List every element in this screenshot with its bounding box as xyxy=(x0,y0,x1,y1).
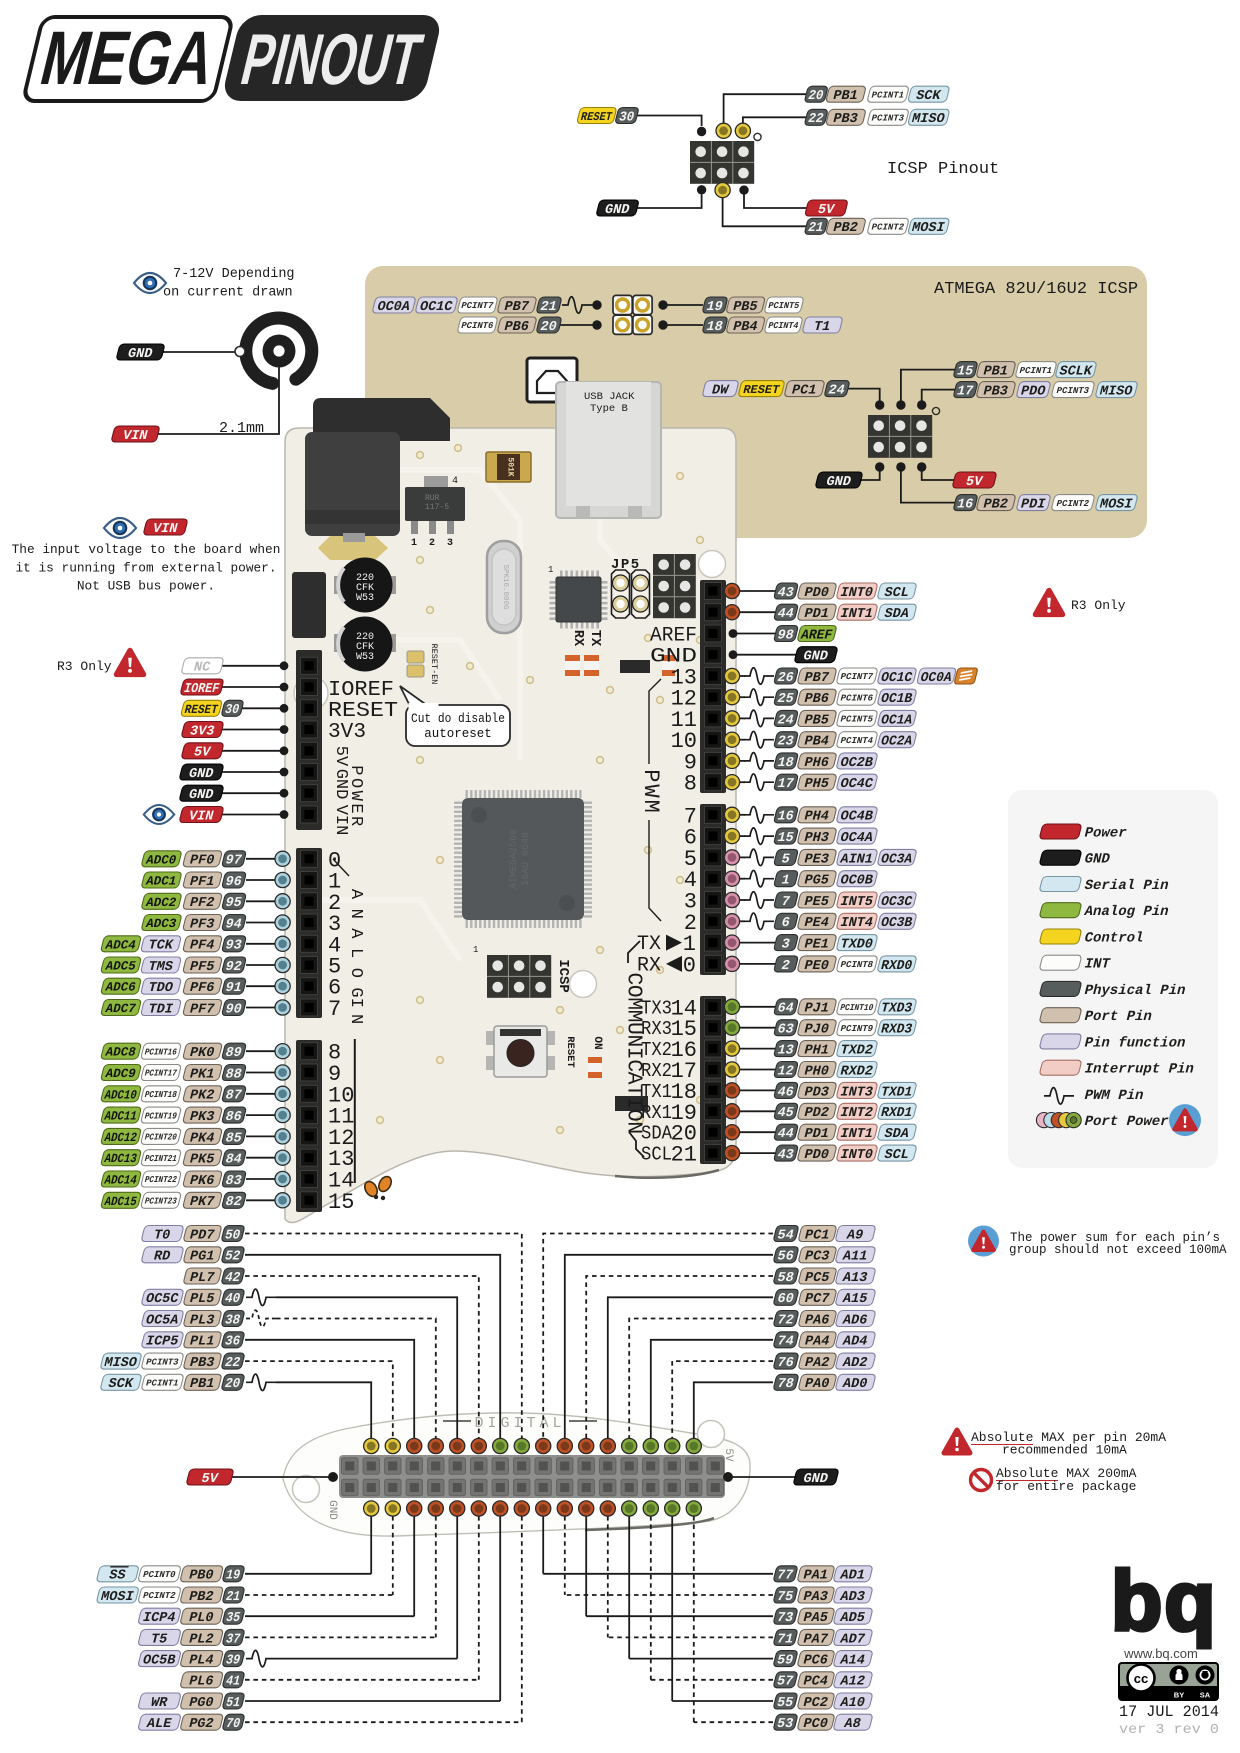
svg-text:PB7: PB7 xyxy=(802,671,830,686)
svg-text:AD3: AD3 xyxy=(838,1590,866,1605)
svg-text:SCLK: SCLK xyxy=(1057,365,1094,380)
svg-text:cc: cc xyxy=(1134,1671,1148,1686)
svg-text:RXD1: RXD1 xyxy=(879,1106,914,1121)
svg-text:ON: ON xyxy=(591,1036,603,1049)
svg-text:IOREF: IOREF xyxy=(328,679,394,702)
svg-text:BY: BY xyxy=(1174,1691,1184,1700)
svg-text:OC0A: OC0A xyxy=(375,300,412,315)
svg-text:ADC9: ADC9 xyxy=(104,1066,138,1081)
svg-text:MEGA: MEGA xyxy=(33,16,223,101)
svg-text:17 JUL 2014: 17 JUL 2014 xyxy=(1119,1703,1219,1721)
svg-text:SPK16.000G: SPK16.000G xyxy=(501,564,509,610)
svg-text:PCINT20: PCINT20 xyxy=(143,1132,178,1143)
svg-text:MOSI: MOSI xyxy=(1098,498,1134,513)
svg-text:PD0: PD0 xyxy=(802,586,830,601)
svg-text:GND: GND xyxy=(603,203,631,218)
svg-text:PH0: PH0 xyxy=(802,1065,830,1080)
svg-text:PL2: PL2 xyxy=(187,1632,215,1647)
svg-text:TDO: TDO xyxy=(146,981,174,996)
svg-text:PCINT2: PCINT2 xyxy=(870,222,905,233)
svg-text:2: 2 xyxy=(429,538,435,549)
svg-text:PL1: PL1 xyxy=(188,1335,216,1350)
svg-text:PB1: PB1 xyxy=(981,365,1009,380)
svg-text:MISO: MISO xyxy=(1098,385,1134,400)
svg-text:MOSI: MOSI xyxy=(910,221,946,236)
svg-text:PCINT9: PCINT9 xyxy=(839,1023,874,1034)
svg-text:PCINT7: PCINT7 xyxy=(839,671,874,682)
svg-text:RX: RX xyxy=(570,630,585,647)
svg-text:AREF: AREF xyxy=(650,625,697,648)
svg-text:PF7: PF7 xyxy=(188,1003,216,1018)
svg-text:RESET: RESET xyxy=(328,700,398,723)
svg-text:ADC14: ADC14 xyxy=(103,1173,139,1188)
svg-text:OC1B: OC1B xyxy=(879,692,914,707)
svg-text:PH1: PH1 xyxy=(802,1044,830,1059)
svg-text:PCINT2: PCINT2 xyxy=(1055,498,1090,509)
svg-text:Control: Control xyxy=(1083,931,1146,947)
svg-text:PJ1: PJ1 xyxy=(802,1002,830,1017)
svg-text:PB6: PB6 xyxy=(802,692,830,707)
svg-text:1: 1 xyxy=(473,945,478,955)
svg-text:ANALOG: ANALOG xyxy=(346,889,365,1007)
svg-text:PA2: PA2 xyxy=(803,1356,831,1371)
svg-text:PCINT3: PCINT3 xyxy=(870,113,906,124)
svg-text:PCINT18: PCINT18 xyxy=(143,1089,178,1100)
svg-text:PC2: PC2 xyxy=(801,1696,829,1711)
svg-text:OC4A: OC4A xyxy=(838,831,875,846)
svg-text:PCINT1: PCINT1 xyxy=(145,1378,181,1389)
svg-text:PK4: PK4 xyxy=(188,1131,216,1146)
svg-text:PCINT5: PCINT5 xyxy=(839,714,874,725)
svg-text:recommended 10mA: recommended 10mA xyxy=(1002,1443,1127,1458)
svg-text:PB3: PB3 xyxy=(831,112,859,127)
svg-text:The input voltage to the board: The input voltage to the board when xyxy=(12,542,281,557)
svg-text:A10: A10 xyxy=(838,1696,866,1711)
svg-text:PB4: PB4 xyxy=(802,735,830,750)
svg-text:PB5: PB5 xyxy=(802,713,830,728)
svg-text:PL3: PL3 xyxy=(188,1314,216,1329)
svg-text:GND: GND xyxy=(187,767,215,782)
svg-text:PCINT1: PCINT1 xyxy=(1018,365,1054,376)
svg-text:3V3: 3V3 xyxy=(188,725,216,740)
svg-text:PC5: PC5 xyxy=(803,1271,831,1286)
svg-text:PA4: PA4 xyxy=(803,1335,831,1350)
svg-text:PINOUT: PINOUT xyxy=(234,20,429,100)
svg-text:A15: A15 xyxy=(841,1292,869,1307)
svg-text:SDA: SDA xyxy=(882,607,911,622)
svg-text:PA1: PA1 xyxy=(801,1569,829,1584)
svg-text:PDO: PDO xyxy=(1019,385,1047,400)
svg-text:ATMEGA2560: ATMEGA2560 xyxy=(509,829,520,889)
svg-text:ADC6: ADC6 xyxy=(104,980,138,995)
svg-text:PK1: PK1 xyxy=(188,1068,216,1083)
svg-text:ADC3: ADC3 xyxy=(144,916,178,931)
svg-text:PCINT4: PCINT4 xyxy=(839,735,875,746)
svg-text:PE4: PE4 xyxy=(802,916,830,931)
svg-text:AREF: AREF xyxy=(799,629,834,644)
svg-text:PD3: PD3 xyxy=(802,1085,830,1100)
svg-text:RESET: RESET xyxy=(741,383,780,397)
svg-text:PCINT3: PCINT3 xyxy=(1055,385,1091,396)
svg-text:SA: SA xyxy=(1200,1691,1211,1700)
svg-text:INT5: INT5 xyxy=(838,895,874,910)
svg-text:GND: GND xyxy=(187,788,215,803)
svg-text:PB5: PB5 xyxy=(731,300,759,315)
svg-text:PCINT21: PCINT21 xyxy=(143,1153,178,1164)
svg-text:GND: GND xyxy=(126,347,154,362)
svg-text:MISO: MISO xyxy=(102,1356,138,1371)
svg-text:PF6: PF6 xyxy=(188,981,216,996)
svg-text:PE0: PE0 xyxy=(802,959,830,974)
svg-text:A11: A11 xyxy=(841,1250,869,1265)
svg-text:PL7: PL7 xyxy=(188,1271,216,1286)
svg-text:R3 Only: R3 Only xyxy=(1071,598,1126,613)
svg-text:PD1: PD1 xyxy=(802,607,830,622)
svg-text:PCINT2: PCINT2 xyxy=(142,1590,177,1601)
svg-text:ADC0: ADC0 xyxy=(144,852,178,867)
svg-text:15: 15 xyxy=(328,1190,354,1215)
svg-text:GND: GND xyxy=(326,1500,338,1520)
svg-text:SCL: SCL xyxy=(882,1148,910,1163)
svg-text:RESET: RESET xyxy=(183,702,220,717)
svg-text:1: 1 xyxy=(548,565,553,575)
svg-text:PC1: PC1 xyxy=(790,384,818,399)
svg-text:ADC5: ADC5 xyxy=(104,959,138,974)
svg-text:PK2: PK2 xyxy=(188,1089,216,1104)
svg-text:8: 8 xyxy=(684,772,697,797)
svg-text:AD2: AD2 xyxy=(841,1356,869,1371)
svg-text:ATMEGA 82U/16U2 ICSP: ATMEGA 82U/16U2 ICSP xyxy=(934,280,1138,299)
svg-text:it is running from external po: it is running from external power. xyxy=(15,561,276,576)
svg-text:TXD0: TXD0 xyxy=(838,938,874,953)
svg-text:Port Power: Port Power xyxy=(1083,1114,1171,1130)
svg-text:PB2: PB2 xyxy=(187,1590,215,1605)
svg-text:POWER: POWER xyxy=(346,765,365,829)
svg-text:PCINT16: PCINT16 xyxy=(143,1047,178,1058)
svg-text:VIN: VIN xyxy=(121,429,149,444)
svg-text:PH6: PH6 xyxy=(802,756,830,771)
svg-text:ICP5: ICP5 xyxy=(144,1335,180,1350)
svg-text:PCINT6: PCINT6 xyxy=(839,693,874,704)
svg-text:AD1: AD1 xyxy=(838,1569,866,1584)
svg-text:PD0: PD0 xyxy=(802,1148,830,1163)
svg-text:PL5: PL5 xyxy=(188,1292,216,1307)
svg-text:ADC2: ADC2 xyxy=(144,895,178,910)
svg-text:PD2: PD2 xyxy=(802,1106,830,1121)
svg-text:SCK: SCK xyxy=(914,89,943,104)
svg-text:on current drawn: on current drawn xyxy=(163,286,293,301)
svg-text:PC7: PC7 xyxy=(803,1292,831,1307)
svg-text:ICP4: ICP4 xyxy=(141,1611,177,1626)
svg-text:A14: A14 xyxy=(838,1654,866,1669)
svg-text:ALE: ALE xyxy=(145,1717,173,1732)
svg-text:PK3: PK3 xyxy=(188,1110,216,1125)
svg-text:ver 3 rev 0: ver 3 rev 0 xyxy=(1119,1722,1219,1738)
svg-text:INT2: INT2 xyxy=(838,1106,874,1121)
svg-text:PA5: PA5 xyxy=(801,1611,829,1626)
svg-text:PL4: PL4 xyxy=(187,1654,215,1669)
svg-text:1: 1 xyxy=(411,538,417,549)
svg-text:PB1: PB1 xyxy=(831,89,859,104)
svg-text:DIGITAL: DIGITAL xyxy=(474,1415,565,1432)
svg-text:OC2A: OC2A xyxy=(879,735,914,750)
svg-text:INT1: INT1 xyxy=(838,607,874,622)
svg-text:COMMUNICATION: COMMUNICATION xyxy=(622,972,646,1133)
svg-text:5V: 5V xyxy=(331,746,350,767)
svg-text:ADC13: ADC13 xyxy=(103,1151,139,1166)
svg-text:PCINT10: PCINT10 xyxy=(839,1002,875,1013)
svg-text:ICSP Pinout: ICSP Pinout xyxy=(887,160,999,179)
svg-text:autoreset: autoreset xyxy=(424,727,492,741)
svg-text:PF5: PF5 xyxy=(188,960,216,975)
svg-text:PK5: PK5 xyxy=(188,1153,216,1168)
svg-text:ADC10: ADC10 xyxy=(103,1087,139,1102)
svg-text:PF4: PF4 xyxy=(188,939,216,954)
svg-text:ADC12: ADC12 xyxy=(103,1130,139,1145)
svg-text:PH5: PH5 xyxy=(802,777,830,792)
svg-text:for entire package: for entire package xyxy=(996,1479,1136,1494)
svg-text:PG0: PG0 xyxy=(187,1696,215,1711)
svg-text:SDA: SDA xyxy=(882,1127,911,1142)
svg-text:ADC4: ADC4 xyxy=(104,937,138,952)
svg-text:W53: W53 xyxy=(356,593,374,604)
svg-text:117-5: 117-5 xyxy=(425,503,449,512)
svg-text:ICSP: ICSP xyxy=(555,959,571,993)
svg-text:OC5C: OC5C xyxy=(144,1292,180,1307)
svg-text:PB0: PB0 xyxy=(187,1569,215,1584)
svg-text:A12: A12 xyxy=(838,1675,866,1690)
svg-text:PCINT7: PCINT7 xyxy=(460,300,495,311)
svg-text:PH4: PH4 xyxy=(802,810,830,825)
svg-text:INT4: INT4 xyxy=(838,916,874,931)
svg-text:OC3A: OC3A xyxy=(879,852,914,867)
svg-text:TMS: TMS xyxy=(146,960,174,975)
svg-text:PH3: PH3 xyxy=(802,831,830,846)
svg-text:16AU 0648: 16AU 0648 xyxy=(521,832,532,886)
svg-text:RXD0: RXD0 xyxy=(879,959,914,974)
svg-text:PA3: PA3 xyxy=(801,1590,829,1605)
svg-text:GND: GND xyxy=(801,1472,829,1487)
svg-text:7: 7 xyxy=(328,997,341,1022)
svg-text:TXD3: TXD3 xyxy=(879,1002,914,1017)
svg-text:Port Pin: Port Pin xyxy=(1083,1009,1154,1025)
svg-text:INT0: INT0 xyxy=(838,586,874,601)
svg-text:7-12V Depending: 7-12V Depending xyxy=(173,267,295,282)
svg-text:PA7: PA7 xyxy=(801,1632,829,1647)
svg-text:PWM: PWM xyxy=(638,769,663,815)
svg-text:PCINT4: PCINT4 xyxy=(767,320,800,331)
svg-text:INT3: INT3 xyxy=(838,1085,874,1100)
svg-text:IN: IN xyxy=(346,998,365,1030)
svg-text:PCINT23: PCINT23 xyxy=(143,1196,178,1207)
svg-text:PB3: PB3 xyxy=(981,385,1009,400)
svg-text:SCK: SCK xyxy=(106,1377,135,1392)
svg-text:MISO: MISO xyxy=(910,112,946,127)
svg-text:SCL: SCL xyxy=(641,1144,672,1166)
svg-text:21: 21 xyxy=(671,1143,697,1168)
svg-text:Cut do disable: Cut do disable xyxy=(411,712,505,726)
svg-text:Analog Pin: Analog Pin xyxy=(1083,904,1171,920)
svg-text:INT: INT xyxy=(1083,957,1113,973)
svg-text:PK6: PK6 xyxy=(188,1174,216,1189)
svg-text:VIN: VIN xyxy=(187,810,215,825)
svg-text:OC3B: OC3B xyxy=(879,916,914,931)
svg-text:PL6: PL6 xyxy=(187,1675,215,1690)
svg-text:AD6: AD6 xyxy=(841,1314,869,1329)
svg-text:OC5A: OC5A xyxy=(144,1314,181,1329)
svg-text:OC4C: OC4C xyxy=(838,777,874,792)
svg-text:ADC8: ADC8 xyxy=(104,1045,138,1060)
svg-text:INT1: INT1 xyxy=(838,1127,874,1142)
svg-text:R3 Only: R3 Only xyxy=(57,659,112,674)
svg-text:PG1: PG1 xyxy=(188,1250,216,1265)
svg-text:W53: W53 xyxy=(356,652,374,663)
svg-text:PCINT3: PCINT3 xyxy=(145,1356,181,1367)
svg-text:PF0: PF0 xyxy=(188,854,216,869)
svg-text:OC3C: OC3C xyxy=(879,895,914,910)
svg-text:AD5: AD5 xyxy=(838,1611,866,1626)
svg-text:TDI: TDI xyxy=(146,1003,174,1018)
svg-text:RESET: RESET xyxy=(564,1036,576,1068)
svg-text:PC1: PC1 xyxy=(803,1229,831,1244)
svg-text:SCL: SCL xyxy=(882,586,910,601)
svg-text:PC4: PC4 xyxy=(801,1675,829,1690)
svg-text:PF3: PF3 xyxy=(188,918,216,933)
svg-text:PD1: PD1 xyxy=(802,1127,830,1142)
svg-text:PG5: PG5 xyxy=(802,874,830,889)
svg-text:PL0: PL0 xyxy=(187,1611,215,1626)
svg-text:A13: A13 xyxy=(841,1271,869,1286)
svg-text:PK0: PK0 xyxy=(188,1046,216,1061)
svg-text:MOSI: MOSI xyxy=(99,1590,135,1605)
svg-text:PE3: PE3 xyxy=(802,852,830,867)
svg-text:Power: Power xyxy=(1083,826,1129,842)
svg-text:GND: GND xyxy=(1083,852,1112,868)
svg-text:PWM Pin: PWM Pin xyxy=(1083,1088,1146,1104)
svg-text:PB4: PB4 xyxy=(731,320,759,335)
svg-text:PCINT5: PCINT5 xyxy=(767,300,801,311)
svg-text:GND: GND xyxy=(824,475,852,490)
svg-text:AD7: AD7 xyxy=(838,1632,866,1647)
svg-text:TXD2: TXD2 xyxy=(838,1044,874,1059)
svg-text:AIN1: AIN1 xyxy=(838,852,874,867)
svg-text:PCINT19: PCINT19 xyxy=(143,1110,178,1121)
svg-text:PA6: PA6 xyxy=(803,1314,831,1329)
svg-text:OC1A: OC1A xyxy=(879,713,914,728)
svg-text:OC1C: OC1C xyxy=(879,671,914,686)
svg-text:PB6: PB6 xyxy=(502,320,530,335)
svg-text:GND: GND xyxy=(801,650,829,665)
svg-text:USB JACK: USB JACK xyxy=(584,391,635,403)
svg-text:PB2: PB2 xyxy=(831,221,859,236)
svg-text:4: 4 xyxy=(452,476,458,487)
svg-text:Type B: Type B xyxy=(590,403,628,415)
svg-text:2.1mm: 2.1mm xyxy=(219,420,264,437)
svg-text:PCINT8: PCINT8 xyxy=(839,959,874,970)
svg-text:PG2: PG2 xyxy=(187,1717,215,1732)
svg-text:VIN: VIN xyxy=(151,522,179,537)
svg-text:ADC7: ADC7 xyxy=(104,1001,138,1016)
svg-text:TX: TX xyxy=(637,933,661,956)
svg-text:Interrupt Pin: Interrupt Pin xyxy=(1083,1062,1196,1078)
svg-text:RXD3: RXD3 xyxy=(879,1023,914,1038)
svg-text:PF1: PF1 xyxy=(188,875,216,890)
svg-text:PJ0: PJ0 xyxy=(802,1023,830,1038)
svg-text:RESET-EN: RESET-EN xyxy=(429,644,439,685)
svg-text:Serial Pin: Serial Pin xyxy=(1083,878,1171,894)
svg-text:IOREF: IOREF xyxy=(182,682,221,697)
svg-text:PE5: PE5 xyxy=(802,895,830,910)
svg-text:ADC15: ADC15 xyxy=(103,1194,139,1209)
svg-text:3V3: 3V3 xyxy=(328,721,366,744)
svg-text:AD4: AD4 xyxy=(841,1335,869,1350)
svg-text:OC0A: OC0A xyxy=(919,671,954,686)
svg-text:RUR: RUR xyxy=(425,494,440,503)
svg-text:Not USB bus power.: Not USB bus power. xyxy=(77,579,215,594)
svg-text:PB1: PB1 xyxy=(188,1377,216,1392)
svg-text:RESET: RESET xyxy=(579,110,613,124)
svg-text:PF2: PF2 xyxy=(188,896,216,911)
svg-text:PC6: PC6 xyxy=(801,1654,829,1669)
svg-text:Physical Pin: Physical Pin xyxy=(1083,983,1188,999)
svg-text:PD7: PD7 xyxy=(188,1229,216,1244)
svg-text:OC1C: OC1C xyxy=(418,300,454,315)
svg-text:PCINT22: PCINT22 xyxy=(143,1174,178,1185)
svg-text:TXD1: TXD1 xyxy=(879,1085,914,1100)
svg-text:OC4B: OC4B xyxy=(838,810,874,825)
svg-text:PB3: PB3 xyxy=(188,1356,216,1371)
svg-text:PCINT0: PCINT0 xyxy=(142,1569,177,1580)
svg-text:TX: TX xyxy=(587,630,602,647)
svg-text:PC0: PC0 xyxy=(801,1717,829,1732)
svg-text:PDI: PDI xyxy=(1019,498,1047,513)
svg-text:RXD2: RXD2 xyxy=(838,1065,874,1080)
svg-text:PCINT6: PCINT6 xyxy=(460,320,495,331)
svg-text:OC0B: OC0B xyxy=(838,874,874,889)
svg-text:PE1: PE1 xyxy=(802,938,830,953)
svg-text:ADC11: ADC11 xyxy=(103,1109,139,1124)
svg-text:PB2: PB2 xyxy=(981,498,1009,513)
svg-text:PB7: PB7 xyxy=(502,300,530,315)
svg-text:OC2B: OC2B xyxy=(838,756,874,771)
svg-text:group should not exceed 100mA: group should not exceed 100mA xyxy=(1009,1243,1227,1257)
svg-text:0: 0 xyxy=(683,953,696,978)
svg-text:www.bq.com: www.bq.com xyxy=(1123,1646,1198,1661)
svg-text:PCINT1: PCINT1 xyxy=(870,90,906,101)
svg-text:ADC1: ADC1 xyxy=(144,874,178,889)
svg-text:PC3: PC3 xyxy=(803,1250,831,1265)
svg-text:TCK: TCK xyxy=(146,939,175,954)
svg-text:PCINT17: PCINT17 xyxy=(143,1068,178,1079)
svg-text:AD0: AD0 xyxy=(841,1377,869,1392)
svg-text:Pin function: Pin function xyxy=(1083,1036,1188,1052)
svg-text:OC5B: OC5B xyxy=(141,1654,177,1669)
svg-text:501K: 501K xyxy=(506,457,515,476)
svg-text:INT0: INT0 xyxy=(838,1148,874,1163)
svg-text:PA0: PA0 xyxy=(803,1377,831,1392)
svg-text:bq: bq xyxy=(1111,1554,1218,1648)
svg-text:PK7: PK7 xyxy=(188,1195,216,1210)
svg-text:3: 3 xyxy=(447,538,453,549)
